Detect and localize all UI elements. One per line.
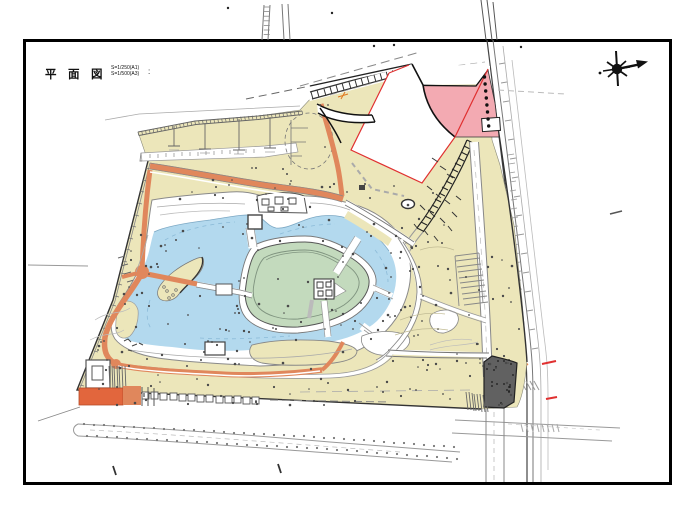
svg-text::: :: [148, 67, 150, 76]
svg-text:S=1/500(A3): S=1/500(A3): [111, 71, 140, 77]
svg-text:平面図: 平面図: [45, 67, 114, 81]
